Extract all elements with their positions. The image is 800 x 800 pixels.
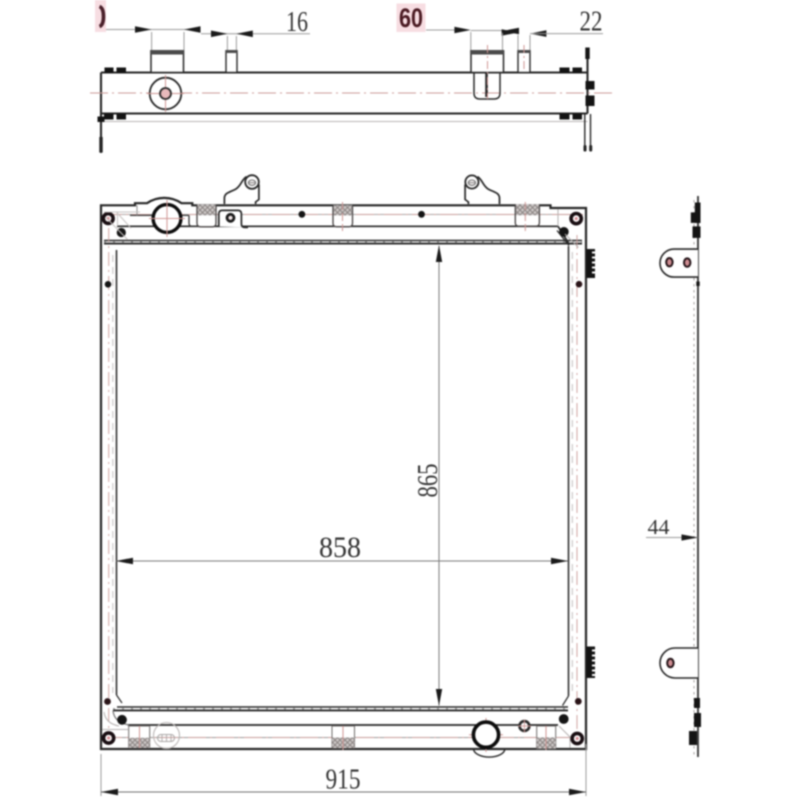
svg-text:865: 865 [413, 464, 444, 498]
svg-text:44: 44 [648, 515, 671, 539]
svg-text:60: 60 [399, 3, 423, 33]
svg-text:915: 915 [326, 765, 361, 796]
svg-text:22: 22 [580, 7, 603, 38]
svg-text:858: 858 [319, 531, 361, 564]
svg-text:16: 16 [286, 7, 308, 38]
